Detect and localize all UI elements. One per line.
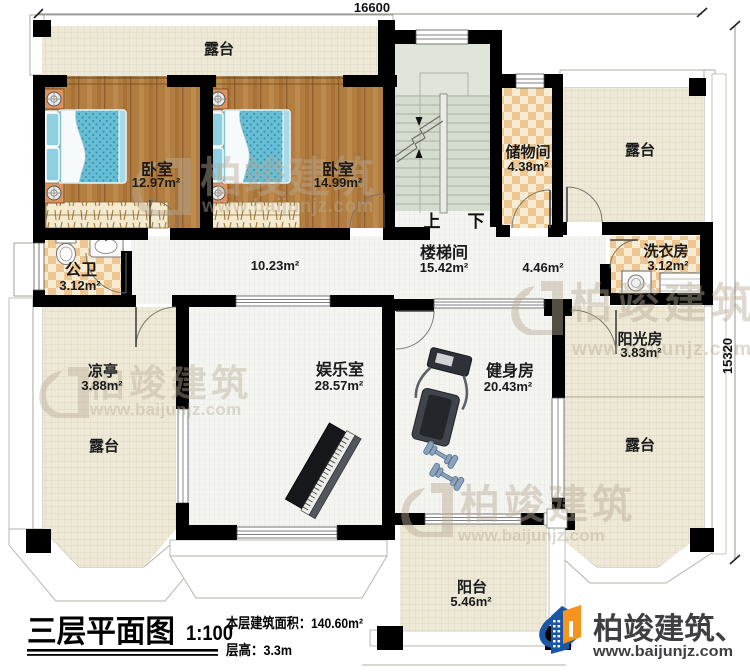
svg-text:层高：3.3m: 层高：3.3m	[226, 642, 292, 658]
svg-text:3.12m²: 3.12m²	[59, 278, 101, 293]
svg-text:15320: 15320	[720, 338, 735, 374]
svg-text:露台: 露台	[89, 437, 119, 455]
svg-text:柏竣建筑: 柏竣建筑	[460, 483, 636, 527]
svg-text:三层平面图: 三层平面图	[27, 614, 175, 649]
svg-text:柏竣建筑、: 柏竣建筑、	[593, 612, 745, 646]
svg-text:14.99m²: 14.99m²	[314, 175, 363, 190]
svg-text:上: 上	[424, 212, 441, 231]
svg-text:15.42m²: 15.42m²	[420, 260, 469, 275]
svg-text:www.baijunjz.com: www.baijunjz.com	[89, 400, 242, 419]
svg-text:www.baijunjz.com: www.baijunjz.com	[201, 196, 374, 217]
svg-text:柏竣建筑: 柏竣建筑	[570, 280, 750, 327]
svg-text:10.23m²: 10.23m²	[251, 258, 300, 273]
svg-text:露台: 露台	[204, 40, 234, 58]
svg-text:健身房: 健身房	[486, 361, 534, 380]
svg-text:3.88m²: 3.88m²	[81, 378, 123, 393]
svg-text:12.97m²: 12.97m²	[132, 175, 181, 190]
svg-text:www.baijunjz.com: www.baijunjz.com	[592, 644, 733, 660]
svg-text:娱乐室: 娱乐室	[316, 360, 364, 379]
svg-text:露台: 露台	[625, 141, 655, 159]
svg-text:4.46m²: 4.46m²	[522, 260, 564, 275]
svg-text:20.43m²: 20.43m²	[484, 379, 533, 394]
svg-text:露台: 露台	[625, 436, 655, 454]
svg-text:3.83m²: 3.83m²	[620, 345, 662, 360]
svg-text:本层建筑面积：140.60m²: 本层建筑面积：140.60m²	[226, 615, 363, 631]
svg-text:16600: 16600	[354, 0, 390, 15]
svg-text:5.46m²: 5.46m²	[450, 594, 492, 609]
svg-text:下: 下	[468, 212, 485, 231]
svg-text:3.12m²: 3.12m²	[647, 258, 689, 273]
svg-text:www.baijunjz.com: www.baijunjz.com	[457, 526, 605, 545]
svg-text:4.38m²: 4.38m²	[507, 159, 549, 174]
svg-text:公卫: 公卫	[65, 261, 97, 279]
svg-text:28.57m²: 28.57m²	[315, 378, 364, 393]
